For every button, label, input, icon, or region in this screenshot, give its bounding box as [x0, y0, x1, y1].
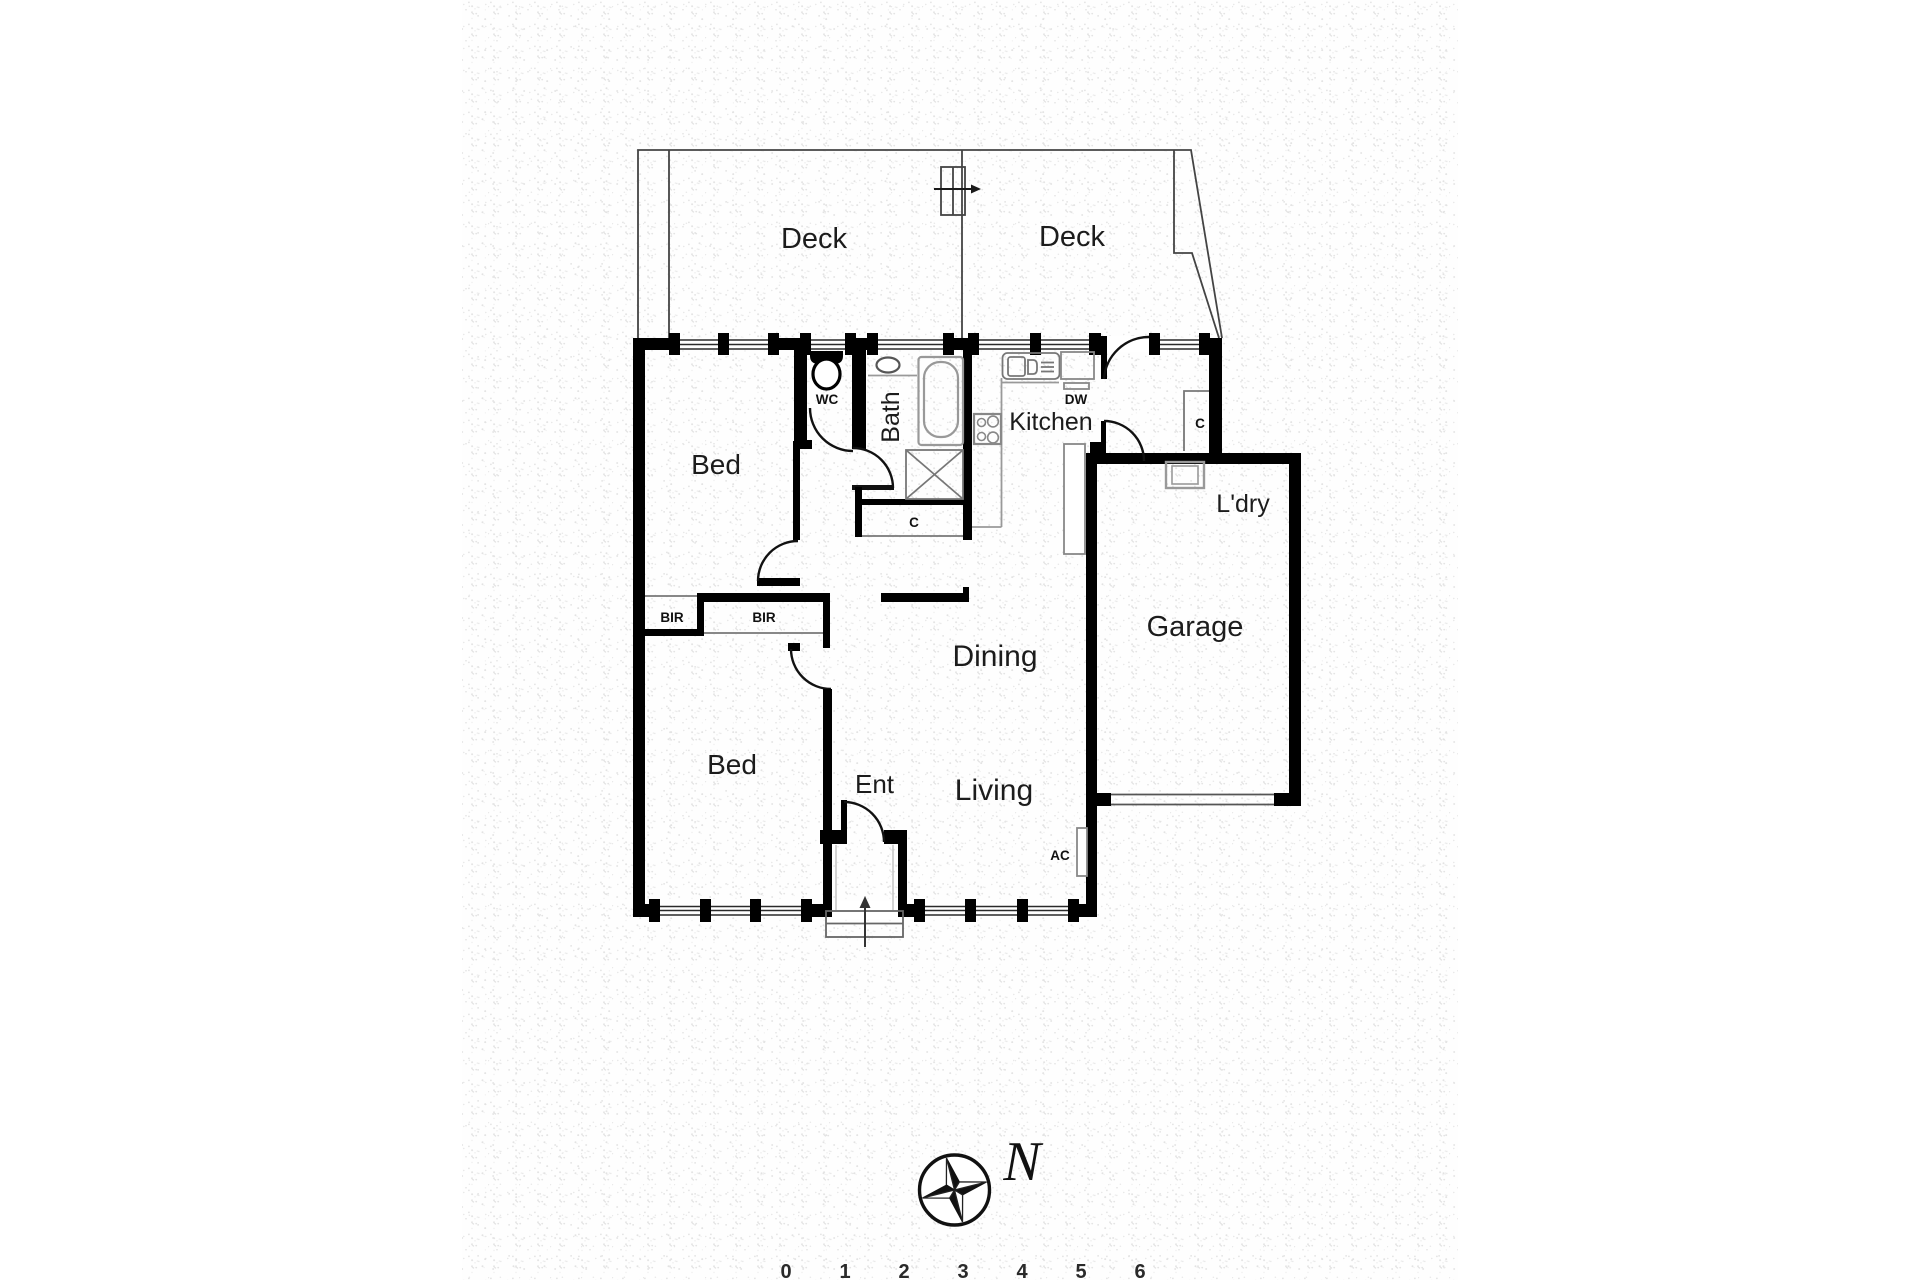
svg-text:C: C	[1195, 416, 1205, 431]
svg-text:5: 5	[1075, 1261, 1086, 1280]
svg-text:Living: Living	[955, 774, 1033, 807]
svg-text:3: 3	[957, 1261, 968, 1280]
svg-text:WC: WC	[816, 392, 839, 407]
svg-text:Ent: Ent	[855, 769, 895, 799]
svg-text:DW: DW	[1065, 392, 1088, 407]
svg-text:BIR: BIR	[752, 610, 776, 625]
svg-text:1: 1	[839, 1261, 850, 1280]
svg-text:Bath: Bath	[877, 391, 905, 442]
svg-text:N: N	[1002, 1131, 1043, 1193]
svg-text:4: 4	[1016, 1261, 1028, 1280]
svg-text:Bed: Bed	[691, 449, 741, 480]
svg-text:Garage: Garage	[1147, 611, 1244, 643]
svg-text:Dining: Dining	[952, 640, 1037, 673]
svg-text:Deck: Deck	[1039, 221, 1106, 253]
svg-text:C: C	[909, 515, 919, 530]
svg-text:Bed: Bed	[707, 749, 757, 780]
svg-text:6: 6	[1134, 1261, 1145, 1280]
svg-text:BIR: BIR	[660, 610, 684, 625]
svg-text:L'dry: L'dry	[1216, 490, 1270, 518]
svg-text:Kitchen: Kitchen	[1009, 408, 1092, 436]
svg-text:0: 0	[780, 1261, 791, 1280]
svg-text:2: 2	[898, 1261, 909, 1280]
svg-text:Deck: Deck	[781, 223, 848, 255]
svg-text:AC: AC	[1050, 848, 1070, 863]
